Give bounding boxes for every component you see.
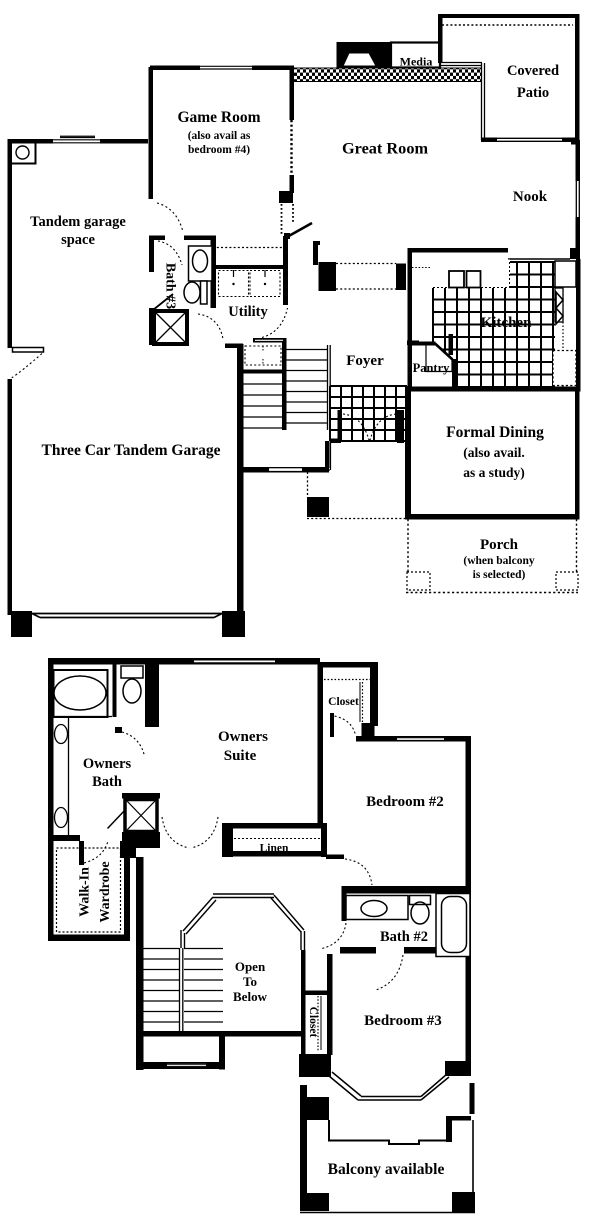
svg-text:Nook: Nook	[513, 189, 548, 205]
svg-text:Owners: Owners	[83, 756, 132, 772]
svg-text:Closet: Closet	[307, 1007, 319, 1038]
svg-text:(also avail as: (also avail as	[188, 130, 251, 142]
svg-text:Great Room: Great Room	[342, 139, 428, 158]
svg-text:Linen: Linen	[260, 843, 289, 855]
svg-text:Tandem garage: Tandem garage	[30, 214, 126, 230]
svg-text:Bath: Bath	[92, 774, 122, 790]
svg-text:Bedroom #3: Bedroom #3	[364, 1013, 442, 1029]
svg-text:To: To	[243, 974, 257, 989]
svg-text:Patio: Patio	[517, 85, 549, 101]
svg-text:Covered: Covered	[507, 63, 559, 79]
svg-text:Closet: Closet	[328, 696, 359, 708]
svg-text:Formal Dining: Formal Dining	[446, 424, 544, 441]
svg-text:Balcony available: Balcony available	[328, 1161, 445, 1178]
svg-text:Utility: Utility	[228, 304, 268, 320]
svg-text:Owners: Owners	[218, 729, 268, 745]
svg-text:bedroom #4): bedroom #4)	[188, 144, 250, 156]
svg-text:Suite: Suite	[224, 748, 257, 764]
svg-text:Bath #3: Bath #3	[163, 263, 178, 309]
svg-text:Bath #2: Bath #2	[380, 929, 428, 945]
svg-text:Foyer: Foyer	[346, 353, 384, 369]
svg-text:(when balcony: (when balcony	[463, 555, 534, 567]
svg-text:(also avail.: (also avail.	[463, 445, 525, 460]
svg-text:Porch: Porch	[480, 537, 519, 553]
svg-text:space: space	[61, 232, 95, 248]
svg-text:Kitchen: Kitchen	[481, 315, 532, 331]
svg-text:Open: Open	[235, 959, 266, 974]
svg-text:Wardrobe: Wardrobe	[98, 861, 113, 922]
svg-text:Below: Below	[233, 989, 268, 1004]
svg-text:Pantry: Pantry	[413, 361, 451, 375]
svg-text:Media: Media	[400, 55, 433, 69]
svg-text:Walk-In: Walk-In	[78, 867, 93, 917]
svg-text:Game Room: Game Room	[177, 109, 260, 126]
svg-text:Bedroom #2: Bedroom #2	[366, 794, 444, 810]
svg-text:is selected): is selected)	[473, 569, 526, 581]
svg-text:Three Car Tandem Garage: Three Car Tandem Garage	[42, 442, 221, 459]
svg-text:as a study): as a study)	[463, 465, 525, 480]
